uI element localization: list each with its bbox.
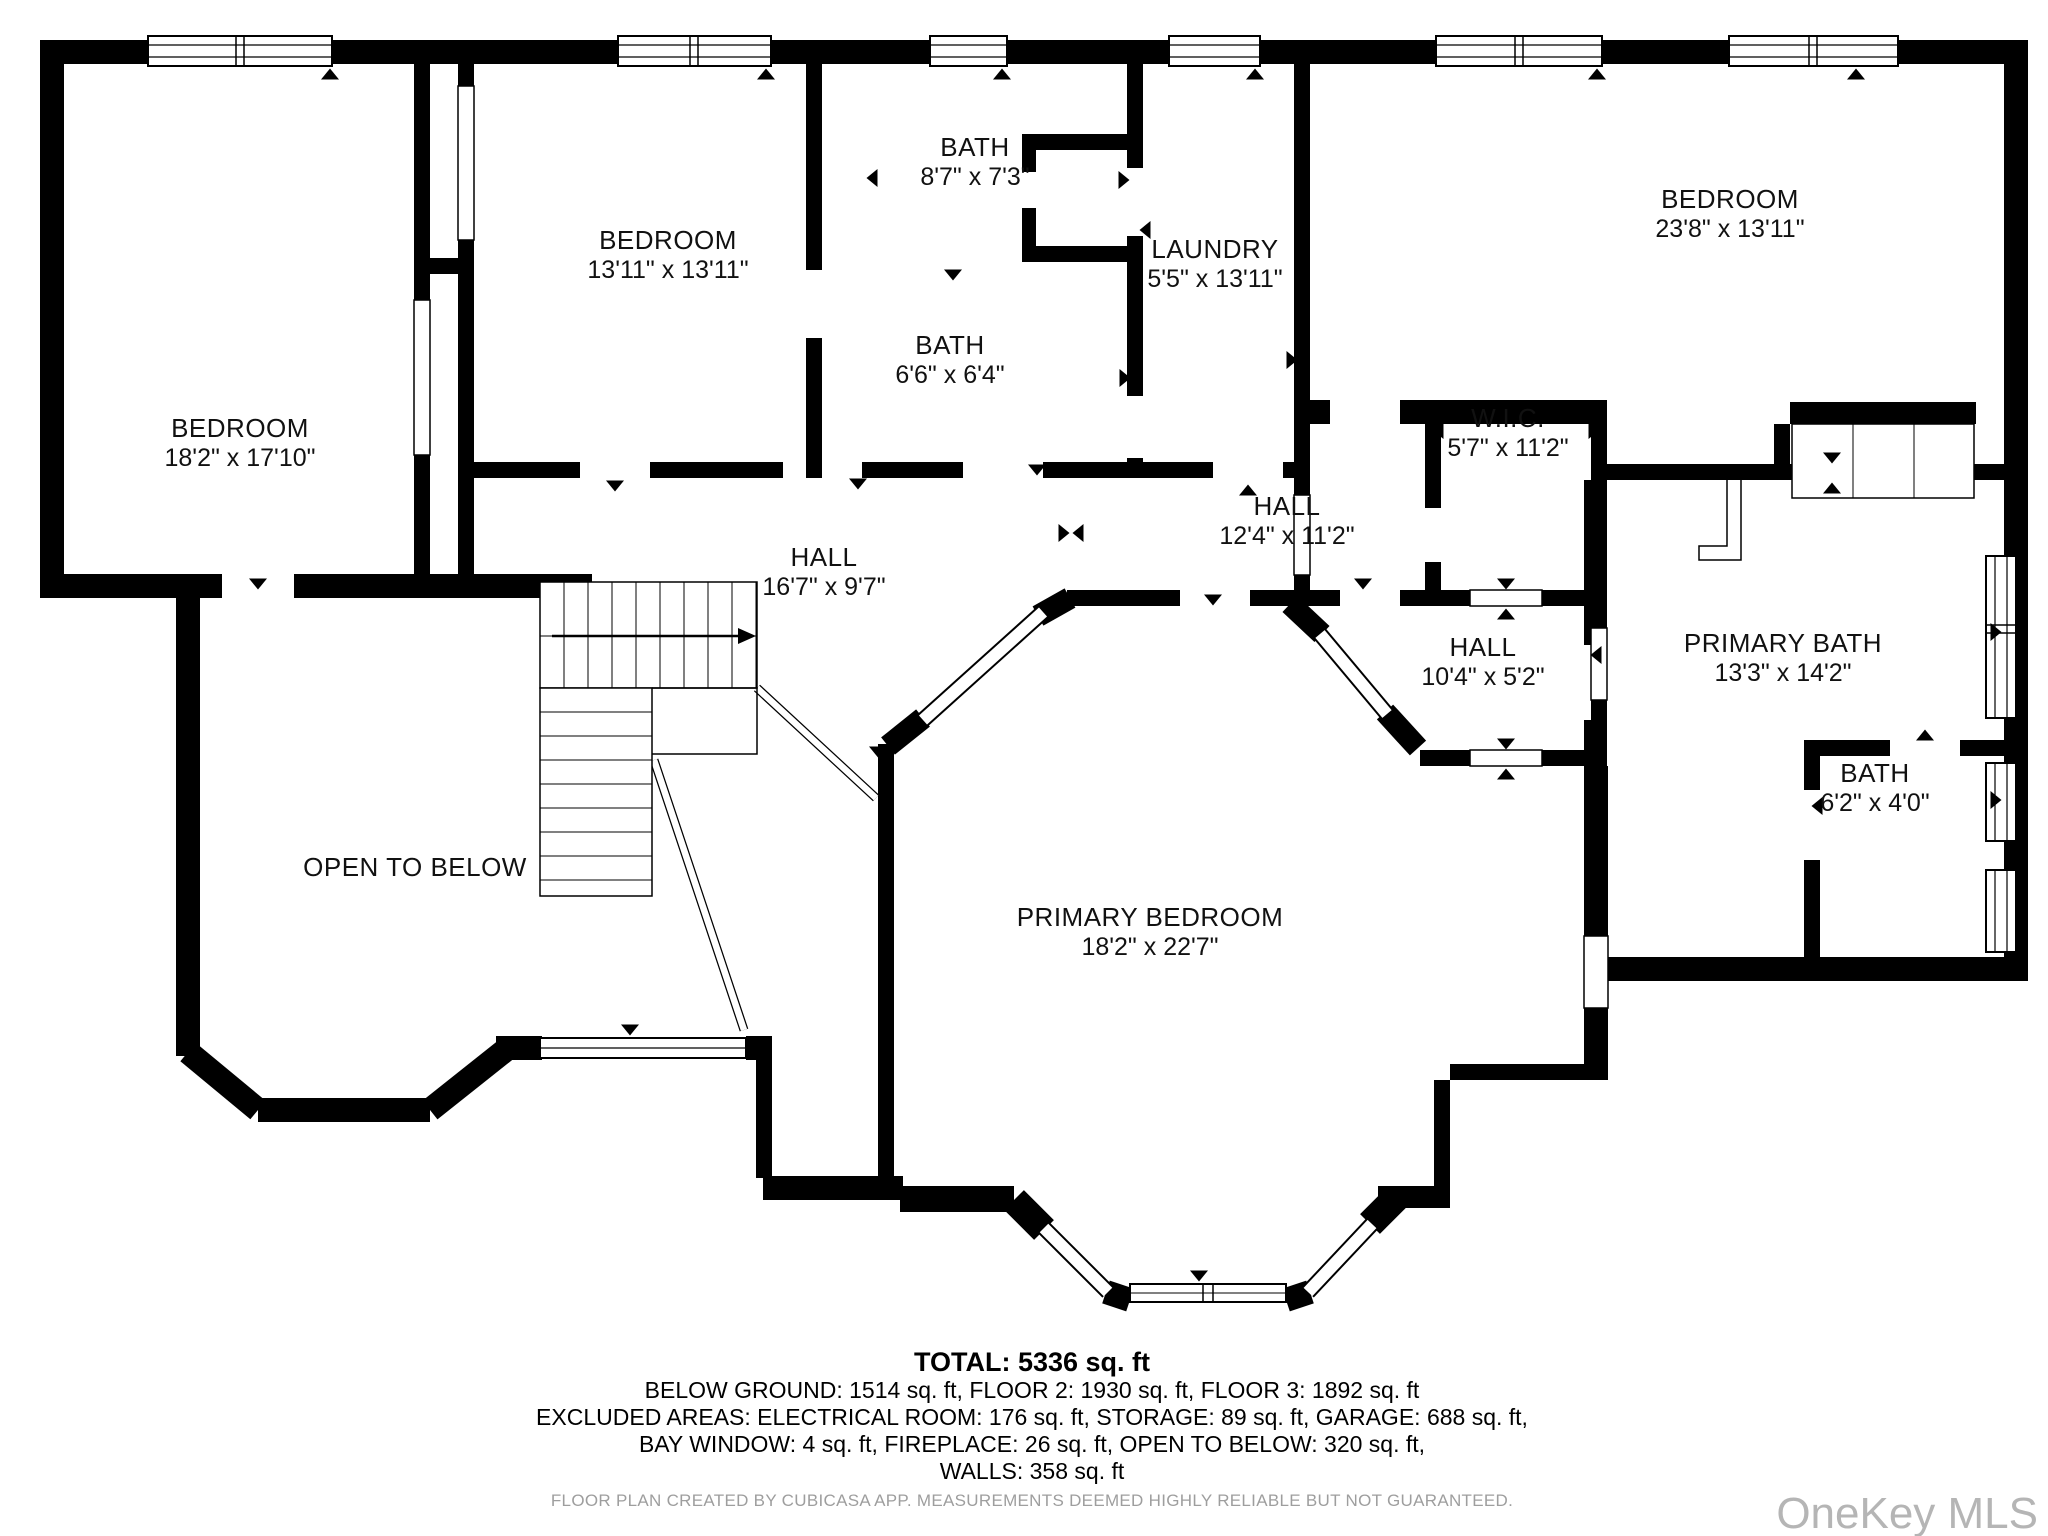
wall-segment [1370,1196,1398,1224]
room-label: HALL [790,542,857,572]
room-dims: 16'7" x 9'7" [762,573,885,601]
room-dims: 18'2" x 17'10" [164,444,315,472]
room-dims: 5'5" x 13'11" [1147,265,1282,293]
room-dims: 12'4" x 11'2" [1219,522,1354,550]
room-dims: 23'8" x 13'11" [1655,215,1804,243]
door-arrow [1204,595,1222,606]
room-dims: 18'2" x 22'7" [1081,933,1218,961]
door-arrow [1059,524,1070,542]
room-label: HALL [1449,632,1516,662]
wall-segment [888,718,923,746]
door-arrow [1073,524,1084,542]
door-arrow [1916,730,1934,741]
room-label: LAUNDRY [1151,234,1278,264]
door-arrow [757,69,775,80]
wall-segment [1106,1292,1130,1300]
wall [1804,740,1890,756]
room-dims: 8'7" x 7'3" [920,163,1029,191]
room-dims: 13'3" x 14'2" [1714,659,1851,687]
summary-line-floors: BELOW GROUND: 1514 sq. ft, FLOOR 2: 1930… [645,1377,1420,1403]
wall [1790,402,1976,424]
railing-gap [757,688,876,798]
door-arrow [621,1025,639,1036]
window-diagonal-glass [923,612,1043,720]
cased-opening [1470,590,1542,606]
cased-opening [1470,750,1542,766]
wall [1584,720,1600,766]
room-label: BEDROOM [1661,184,1799,214]
wall [1022,134,1132,150]
wall [878,744,894,1176]
wall [1434,1080,1450,1192]
summary-line-baywindow: BAY WINDOW: 4 sq. ft, FIREPLACE: 26 sq. … [639,1431,1425,1457]
room-label: BATH [940,132,1009,162]
room-label: BATH [1840,758,1909,788]
wall [1425,424,1441,508]
door-arrow [867,169,878,187]
closet [1792,424,1974,498]
wall [1294,64,1310,478]
wall [1804,860,1820,981]
summary-line-walls: WALLS: 358 sq. ft [940,1458,1125,1484]
door-arrow [1190,1271,1208,1282]
window-diagonal-glass [1308,1224,1372,1292]
door-arrow [1497,609,1515,620]
wall [1067,590,1180,606]
door-arrow [1497,579,1515,590]
room-dims: 10'4" x 5'2" [1421,663,1544,691]
wall [458,240,474,574]
wall [1804,756,1820,790]
disclaimer-text: FLOOR PLAN CREATED BY CUBICASA APP. MEAS… [551,1491,1513,1510]
wall [806,338,822,478]
cased-opening [458,86,474,240]
room-label: PRIMARY BEDROOM [1017,902,1284,932]
wall [1960,740,2004,756]
wall [1591,464,1797,480]
door-arrow [944,270,962,281]
wall [1584,480,1600,645]
wall [1022,208,1036,262]
window [1169,36,1260,66]
cased-opening [414,300,430,455]
wall [1310,400,1330,424]
wall [1294,575,1310,591]
wall-segment [1385,712,1418,748]
cased-opening [1591,628,1607,700]
wall [862,462,963,478]
door-arrow [1354,579,1372,590]
wall [756,1058,772,1178]
wall [1584,766,1608,936]
door-arrow [1588,69,1606,80]
wall [806,64,822,270]
wall [1043,462,1213,478]
wall [1127,64,1143,168]
window [930,36,1007,66]
door-arrow [606,481,624,492]
room-label: OPEN TO BELOW [303,852,527,882]
summary-line-excluded: EXCLUDED AREAS: ELECTRICAL ROOM: 176 sq.… [536,1404,1528,1430]
wall [763,1176,903,1200]
wall [900,1186,1014,1212]
wall [458,462,580,478]
room-dims: 6'6" x 6'4" [895,361,1004,389]
wall [1425,562,1441,590]
staircase [540,582,757,896]
wall [1283,462,1310,478]
window [1729,36,1898,66]
door-arrow [321,69,339,80]
room-dims: 13'11" x 13'11" [587,256,748,284]
room-dims: 6'2" x 4'0" [1820,789,1929,817]
room-dims: 5'7" x 11'2" [1447,434,1568,462]
door-arrow [993,69,1011,80]
window [148,36,332,66]
stairs-lower [540,688,652,896]
door-arrow [849,479,867,490]
door-arrow [1847,69,1865,80]
fireplace [1699,473,1741,560]
railing-gap [654,760,744,1030]
room-label: W.I.C. [1471,403,1545,433]
wall [176,598,200,1056]
summary-total: TOTAL: 5336 sq. ft [914,1347,1150,1377]
wall [40,574,222,598]
window [1436,36,1602,66]
wall-segment [1290,604,1322,634]
watermark-onekey-mls: OneKey MLS [1776,1489,2038,1536]
door-arrow [1497,739,1515,750]
door-arrow [1246,69,1264,80]
wall-segment [430,1048,508,1110]
wall-segment [1286,1292,1310,1300]
window [1986,870,2016,952]
wall [1420,750,1470,766]
room-label: BEDROOM [171,413,309,443]
door-arrow [1119,171,1130,189]
wall [458,64,474,86]
wall [1022,246,1132,262]
window-diagonal-glass [1044,1228,1108,1292]
wall [1400,590,1470,606]
door-arrow [1497,769,1515,780]
wall [1774,424,1790,480]
wall [650,462,783,478]
room-label: PRIMARY BATH [1684,628,1882,658]
door-arrow [249,579,267,590]
wall-segment [1014,1200,1044,1230]
window [618,36,771,66]
wall [1127,236,1143,396]
wall-segment [188,1052,258,1110]
room-label: HALL [1253,491,1320,521]
window-diagonal-glass [1320,634,1387,714]
cased-opening [1584,936,1608,1008]
stair-landing-outline [652,688,757,754]
floor-plan-page: BEDROOM18'2" x 17'10"BEDROOM13'11" x 13'… [0,0,2048,1536]
wall [746,1036,772,1060]
wall [414,455,430,575]
wall [1450,1064,1608,1080]
room-label: BEDROOM [599,225,737,255]
room-label: BATH [915,330,984,360]
floor-plan-canvas: BEDROOM18'2" x 17'10"BEDROOM13'11" x 13'… [0,0,2048,1536]
wall [40,40,64,598]
